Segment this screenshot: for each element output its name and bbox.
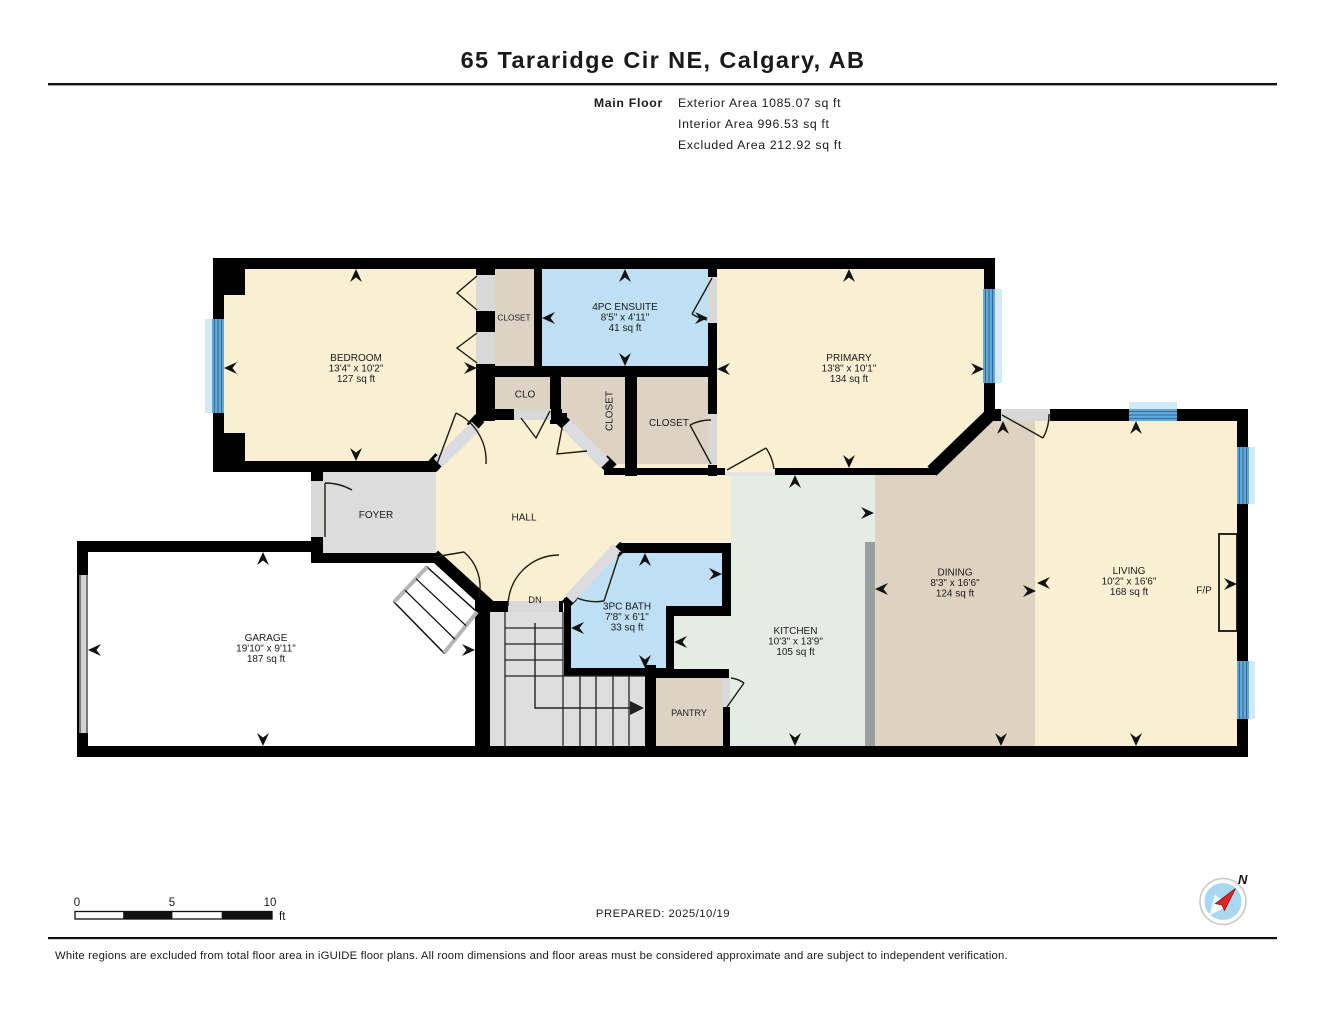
svg-text:PANTRY: PANTRY [671, 708, 707, 718]
svg-text:33 sq ft: 33 sq ft [611, 623, 644, 634]
svg-text:CLOSET: CLOSET [497, 313, 530, 323]
svg-text:PREPARED: 2025/10/19: PREPARED: 2025/10/19 [596, 908, 730, 920]
svg-text:10'3" x 13'9": 10'3" x 13'9" [768, 637, 823, 648]
svg-text:CLOSET: CLOSET [605, 391, 616, 431]
svg-text:134 sq ft: 134 sq ft [830, 374, 869, 385]
svg-text:105 sq ft: 105 sq ft [776, 647, 815, 658]
svg-text:8'5" x 4'11": 8'5" x 4'11" [601, 313, 650, 324]
svg-text:DN: DN [528, 595, 541, 605]
svg-text:GARAGE: GARAGE [245, 633, 288, 644]
svg-text:F/P: F/P [1196, 586, 1212, 597]
svg-text:PRIMARY: PRIMARY [826, 353, 872, 364]
svg-text:0: 0 [74, 897, 80, 909]
svg-text:KITCHEN: KITCHEN [774, 626, 818, 637]
svg-text:124 sq ft: 124 sq ft [936, 589, 975, 600]
svg-text:HALL: HALL [511, 513, 536, 524]
svg-text:13'8" x 10'1": 13'8" x 10'1" [822, 364, 877, 375]
svg-text:Exterior Area 1085.07 sq ft: Exterior Area 1085.07 sq ft [678, 96, 841, 110]
svg-text:DINING: DINING [938, 568, 973, 579]
svg-text:4PC ENSUITE: 4PC ENSUITE [592, 302, 658, 313]
svg-text:FOYER: FOYER [359, 510, 393, 521]
svg-text:Excluded Area 212.92 sq ft: Excluded Area 212.92 sq ft [678, 138, 842, 152]
svg-text:N: N [1238, 872, 1248, 887]
svg-text:ft: ft [279, 911, 286, 923]
svg-text:CLO: CLO [515, 390, 536, 401]
svg-text:CLOSET: CLOSET [649, 418, 689, 429]
svg-text:5: 5 [169, 897, 175, 909]
svg-text:7'8" x 6'1": 7'8" x 6'1" [605, 612, 649, 623]
svg-text:19'10" x 9'11": 19'10" x 9'11" [236, 644, 296, 655]
svg-text:127 sq ft: 127 sq ft [337, 374, 376, 385]
svg-text:168 sq ft: 168 sq ft [1110, 587, 1149, 598]
svg-text:10: 10 [264, 897, 277, 909]
svg-text:3PC BATH: 3PC BATH [603, 602, 651, 613]
svg-text:White regions are excluded fro: White regions are excluded from total fl… [55, 950, 1008, 962]
svg-text:8'3" x 16'6": 8'3" x 16'6" [930, 578, 980, 589]
svg-text:65 Tararidge Cir NE, Calgary,: 65 Tararidge Cir NE, Calgary, AB [461, 47, 866, 73]
svg-text:BEDROOM: BEDROOM [330, 353, 382, 364]
svg-text:41 sq ft: 41 sq ft [609, 323, 642, 334]
svg-text:187 sq ft: 187 sq ft [247, 654, 286, 665]
svg-text:Main Floor: Main Floor [594, 96, 663, 110]
svg-text:LIVING: LIVING [1113, 566, 1146, 577]
svg-text:Interior Area 996.53 sq ft: Interior Area 996.53 sq ft [678, 117, 830, 131]
svg-text:13'4" x 10'2": 13'4" x 10'2" [329, 364, 384, 375]
svg-text:10'2" x 16'6": 10'2" x 16'6" [1102, 577, 1157, 588]
